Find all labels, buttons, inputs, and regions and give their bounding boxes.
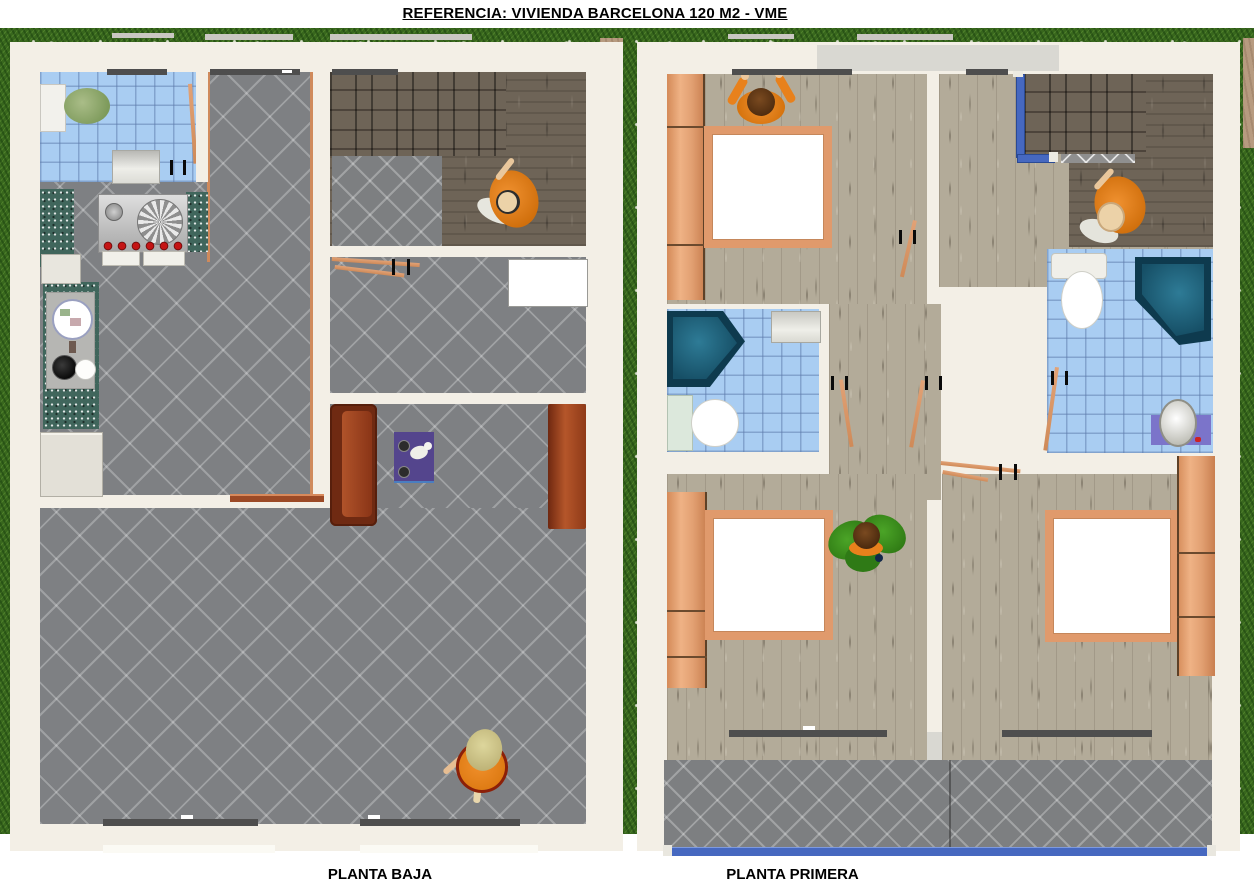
placemat bbox=[70, 318, 81, 326]
floor-plan-ground bbox=[10, 42, 623, 851]
cooking-pot bbox=[52, 355, 77, 380]
bathtub-basin bbox=[673, 317, 737, 379]
label-planta-primera: PLANTA PRIMERA bbox=[650, 866, 935, 883]
sofa bbox=[330, 404, 377, 526]
terrace-railing bbox=[667, 847, 1212, 856]
door-bedroom-top-left bbox=[900, 220, 917, 277]
floor-plan-first bbox=[637, 42, 1240, 851]
door-handle bbox=[999, 464, 1017, 480]
bathroom-first-left bbox=[667, 309, 819, 452]
person-figure bbox=[450, 727, 514, 805]
window-corridor bbox=[210, 69, 300, 75]
window-tick bbox=[181, 815, 193, 819]
faucet-dot bbox=[1195, 437, 1201, 442]
wall-trim bbox=[310, 72, 313, 495]
door-handle bbox=[1051, 371, 1068, 385]
bed-double bbox=[705, 510, 833, 640]
bed-double bbox=[1045, 510, 1179, 642]
extractor-fan bbox=[137, 199, 183, 245]
person-hair bbox=[747, 88, 775, 116]
pot-small bbox=[105, 203, 123, 221]
wardrobe-divider bbox=[1177, 616, 1215, 618]
wardrobe bbox=[1177, 456, 1215, 676]
bathroom-first-right bbox=[1047, 249, 1213, 453]
wardrobe-divider bbox=[1177, 552, 1215, 554]
person-item bbox=[875, 554, 883, 562]
bathtub bbox=[1135, 257, 1211, 345]
person-figure-sitting bbox=[827, 512, 907, 584]
placemat bbox=[60, 309, 70, 316]
toilet-tank bbox=[667, 395, 693, 451]
stair-treads bbox=[1024, 74, 1146, 154]
railing-post bbox=[663, 845, 672, 856]
fridge bbox=[40, 432, 103, 497]
railing-post bbox=[1013, 71, 1023, 77]
wardrobe-divider bbox=[667, 126, 705, 128]
railing-post bbox=[1049, 152, 1058, 162]
label-planta-baja: PLANTA BAJA bbox=[240, 866, 520, 883]
wardrobe bbox=[667, 74, 705, 300]
person-figure bbox=[472, 160, 544, 246]
bathtub bbox=[667, 311, 745, 387]
bathtub-basin bbox=[1142, 264, 1204, 336]
hallway-first bbox=[829, 304, 941, 500]
window-sill bbox=[112, 33, 174, 38]
window-living-1 bbox=[103, 819, 258, 826]
person-figure bbox=[1079, 172, 1151, 252]
bedroom-bottom-right bbox=[942, 474, 1212, 772]
stair-guard-gray bbox=[1061, 154, 1135, 163]
washbasin-unit bbox=[112, 150, 160, 184]
wall bbox=[196, 72, 208, 182]
kitchen-appliance bbox=[41, 254, 81, 284]
window-sill bbox=[330, 34, 472, 40]
door-hall-right bbox=[909, 380, 925, 448]
window-sill bbox=[857, 34, 953, 40]
window-bedroom-top bbox=[732, 69, 852, 75]
railing-post bbox=[1207, 845, 1216, 856]
landing-patch-top bbox=[817, 45, 1059, 71]
person-figure bbox=[729, 74, 795, 126]
cabinet-red bbox=[548, 404, 586, 529]
cat-head bbox=[424, 442, 432, 450]
window-hall-top bbox=[966, 69, 1008, 75]
window-tick bbox=[282, 70, 292, 73]
sofa-seat bbox=[342, 411, 372, 517]
bedroom-top-left bbox=[667, 74, 927, 304]
toilet-bowl bbox=[1061, 271, 1103, 329]
wardrobe-divider bbox=[667, 244, 705, 246]
stove-knobs bbox=[103, 241, 183, 251]
terrace-divider bbox=[949, 760, 951, 850]
staircase-room bbox=[330, 72, 586, 246]
window-tick bbox=[368, 815, 380, 819]
bedroom-bottom-left bbox=[667, 474, 927, 772]
room-middle-ground bbox=[330, 257, 586, 393]
door-handle bbox=[170, 160, 186, 175]
round-table bbox=[52, 299, 93, 340]
stair-treads bbox=[330, 72, 506, 156]
utensil bbox=[69, 341, 76, 353]
plant-rug bbox=[64, 88, 110, 124]
door-handle bbox=[392, 259, 410, 275]
person-face bbox=[498, 192, 517, 212]
exterior-path-right bbox=[1243, 38, 1254, 148]
kitchen-prep-table bbox=[46, 292, 95, 389]
window-bedroom-br bbox=[1002, 730, 1152, 737]
stair-landing bbox=[332, 156, 442, 246]
footer-strip bbox=[0, 860, 1254, 887]
plate bbox=[75, 359, 96, 380]
terrace bbox=[664, 760, 1212, 850]
window-sill bbox=[205, 34, 293, 40]
wardrobe-divider bbox=[667, 610, 707, 612]
threshold-step bbox=[230, 494, 324, 502]
rug bbox=[394, 432, 434, 483]
window-staircase bbox=[332, 69, 398, 75]
wardrobe bbox=[667, 492, 707, 688]
door-handle bbox=[899, 230, 916, 244]
person-hair bbox=[853, 522, 880, 549]
door-handle bbox=[925, 376, 942, 390]
washbasin-unit bbox=[771, 311, 821, 343]
window-bathroom bbox=[107, 69, 167, 75]
bathroom-ground bbox=[40, 72, 196, 182]
exterior-sill bbox=[360, 845, 538, 853]
person-head bbox=[1097, 202, 1125, 232]
window-bedroom-bl bbox=[729, 730, 887, 737]
window-living-2 bbox=[360, 819, 520, 826]
stair-railing-vertical bbox=[1016, 74, 1025, 158]
floor-plan-page: REFERENCIA: VIVIENDA BARCELONA 120 M2 - … bbox=[0, 0, 1254, 887]
kitchen-drawer bbox=[102, 251, 140, 266]
door-handle bbox=[831, 376, 848, 390]
rug-spot bbox=[398, 466, 410, 478]
window-tick bbox=[803, 726, 815, 730]
rug-spot bbox=[398, 440, 410, 452]
wardrobe-divider bbox=[667, 656, 707, 658]
toilet-bowl bbox=[691, 399, 739, 447]
shower-cabinet bbox=[40, 84, 66, 132]
exterior-sill bbox=[103, 845, 275, 853]
table-white bbox=[508, 259, 588, 307]
kitchen-counter bbox=[186, 192, 208, 252]
washbasin-bowl bbox=[1159, 399, 1197, 447]
bed-double bbox=[704, 126, 832, 248]
window-sill bbox=[728, 34, 794, 39]
page-title: REFERENCIA: VIVIENDA BARCELONA 120 M2 - … bbox=[0, 5, 1190, 22]
kitchen-drawer bbox=[143, 251, 185, 266]
stove bbox=[98, 194, 188, 253]
